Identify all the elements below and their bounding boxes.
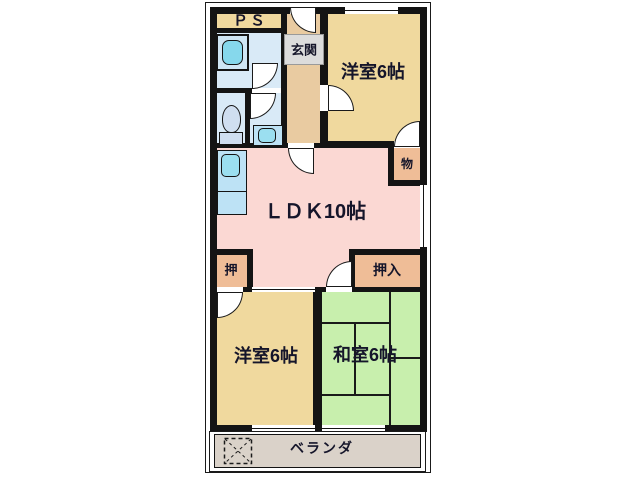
wall-segment xyxy=(313,287,322,432)
washer-space-icon xyxy=(223,437,253,465)
kitchen-counter-divider xyxy=(218,191,246,192)
door-opening xyxy=(326,287,352,292)
washbasin xyxy=(258,128,276,143)
wall-segment xyxy=(247,249,253,287)
toilet xyxy=(222,105,241,133)
label-storage: 物 xyxy=(401,158,413,170)
window xyxy=(345,7,398,14)
window xyxy=(420,185,427,247)
label-ps: ＰＳ xyxy=(233,14,267,29)
kitchen-sink xyxy=(221,154,240,177)
tatami-line xyxy=(322,322,390,324)
label-closet-oshiire: 押入 xyxy=(373,263,401,277)
label-entrance: 玄関 xyxy=(291,44,317,57)
floor-plan: ＰＳ 玄関 洋室6帖 物 ＬＤＫ10帖 押 押入 洋室6帖 和室6帖 ベランダ xyxy=(0,0,640,480)
label-veranda: ベランダ xyxy=(290,441,354,455)
label-western-room-top: 洋室6帖 xyxy=(341,63,405,81)
label-closet-oshi: 押 xyxy=(224,264,237,277)
label-japanese-room: 和室6帖 xyxy=(333,346,397,364)
wall-segment xyxy=(349,249,427,255)
label-ldk: ＬＤＫ10帖 xyxy=(264,202,366,222)
bathtub xyxy=(222,40,243,65)
door-opening xyxy=(320,85,328,111)
wall-segment xyxy=(320,7,328,148)
toilet-tank xyxy=(219,132,243,145)
tatami-line xyxy=(322,394,390,396)
label-western-room-bottom: 洋室6帖 xyxy=(234,347,298,365)
sliding-door xyxy=(252,287,315,292)
